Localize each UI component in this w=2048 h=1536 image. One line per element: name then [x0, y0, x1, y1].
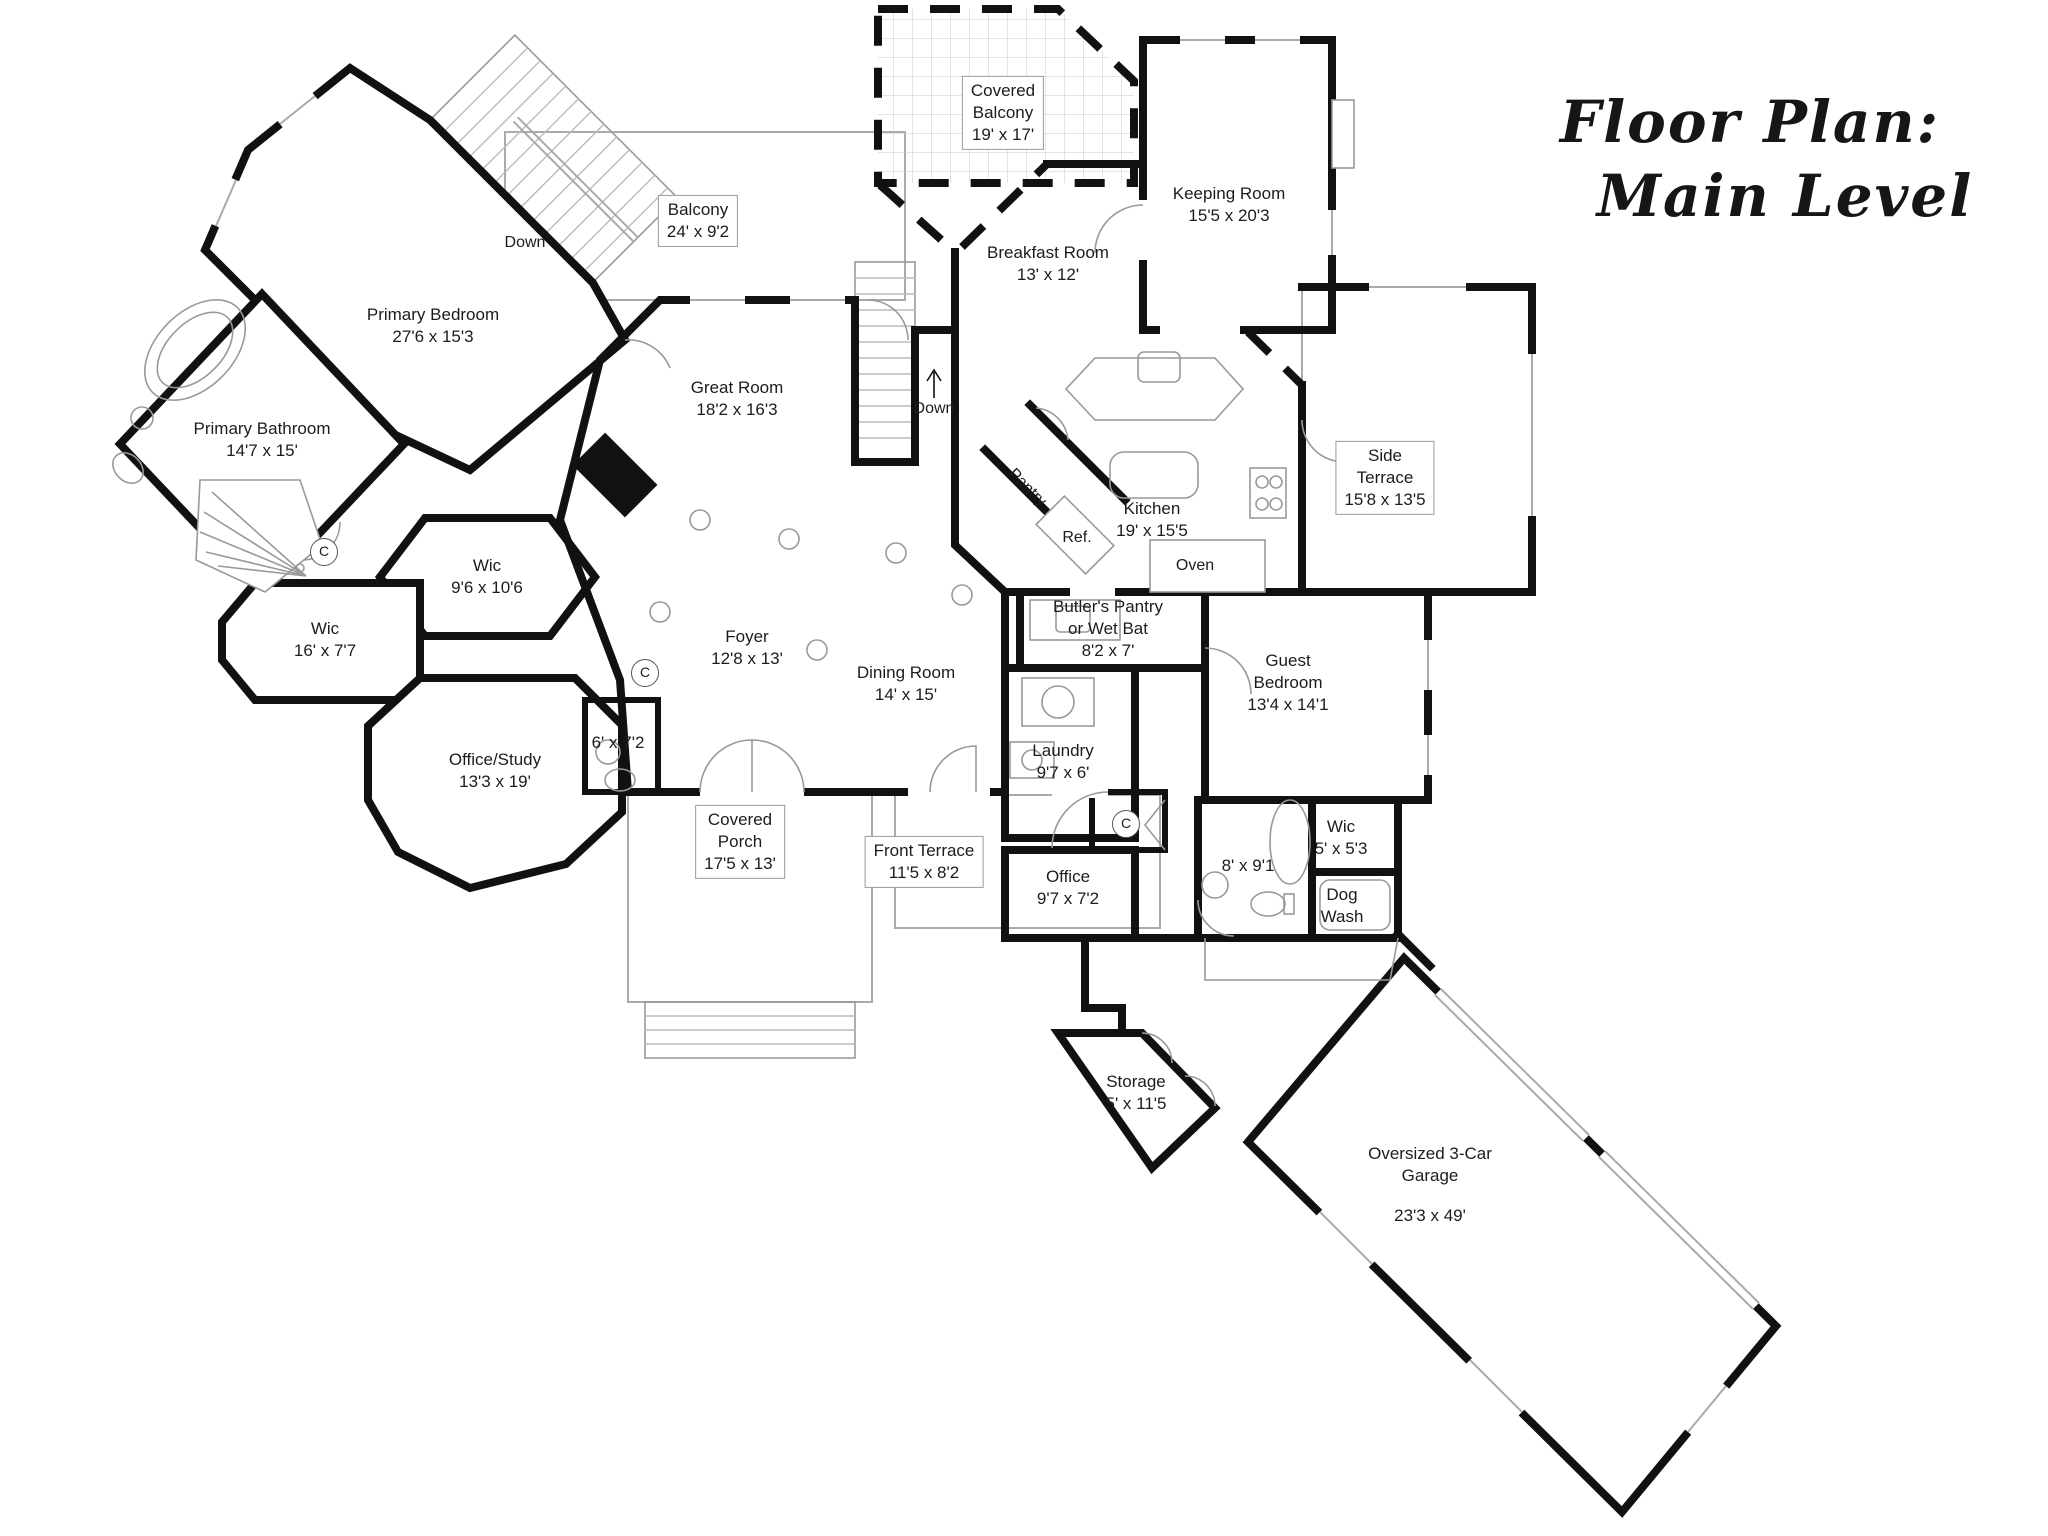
room-name: Dining Room	[857, 662, 955, 684]
room-label-laundry: Laundry9'7 x 6'	[1032, 740, 1093, 784]
room-name: Great Room	[691, 377, 784, 399]
plan-title: Floor Plan: Main Level	[1470, 88, 2030, 230]
annotation-down-upper-stairs: Down	[505, 234, 546, 252]
annotation-closet-3: C	[1112, 810, 1140, 838]
room-label-foyer: Foyer12'8 x 13'	[711, 626, 783, 670]
room-label-guest-bathroom: 8' x 9'1	[1222, 855, 1275, 877]
room-name: Primary Bathroom	[194, 418, 331, 440]
annotation-down-lower-stairs: Down	[914, 400, 955, 418]
room-name: Wic	[451, 555, 523, 577]
room-label-great-room: Great Room18'2 x 16'3	[691, 377, 784, 421]
room-name: Foyer	[711, 626, 783, 648]
room-name: Office/Study	[449, 749, 541, 771]
room-name: Breakfast Room	[987, 242, 1109, 264]
room-label-breakfast-room: Breakfast Room13' x 12'	[987, 242, 1109, 286]
room-dims: 5' x 5'3	[1315, 838, 1368, 860]
room-dims: 8' x 9'1	[1222, 855, 1275, 877]
room-dims: 16' x 7'7	[294, 640, 356, 662]
room-dims: 9'7 x 6'	[1032, 762, 1093, 784]
room-name: Laundry	[1032, 740, 1093, 762]
room-label-kitchen: Kitchen19' x 15'5	[1116, 498, 1188, 542]
room-name: Oversized 3-Car Garage	[1368, 1143, 1492, 1187]
room-dims: 9'6 x 10'6	[451, 577, 523, 599]
room-label-guest-bedroom: Guest Bedroom13'4 x 14'1	[1247, 650, 1328, 716]
room-label-covered-porch: Covered Porch17'5 x 13'	[695, 805, 785, 879]
room-name: Wic	[294, 618, 356, 640]
annotation-closet-1: C	[310, 538, 338, 566]
room-name: Wic	[1315, 816, 1368, 838]
room-label-primary-bedroom: Primary Bedroom27'6 x 15'3	[367, 304, 499, 348]
room-dims: 23'3 x 49'	[1368, 1205, 1492, 1227]
room-labels: Covered Balcony19' x 17'Balcony24' x 9'2…	[0, 0, 2048, 1536]
room-name: Covered Balcony	[971, 80, 1035, 124]
room-dims: 11'5 x 8'2	[874, 862, 975, 884]
room-name: Covered Porch	[704, 809, 776, 853]
annotation-oven: Oven	[1176, 557, 1214, 575]
room-dims: 13'3 x 19'	[449, 771, 541, 793]
plan-title-line1: Floor Plan:	[1470, 88, 2030, 156]
room-name: Primary Bedroom	[367, 304, 499, 326]
room-name: Balcony	[667, 199, 729, 221]
room-label-powder-room: 6' x 7'2	[592, 732, 645, 754]
room-label-balcony: Balcony24' x 9'2	[658, 195, 738, 247]
room-label-office: Office9'7 x 7'2	[1037, 866, 1099, 910]
room-name: Kitchen	[1116, 498, 1188, 520]
room-name: Front Terrace	[874, 840, 975, 862]
room-dims: 5' x 11'5	[1106, 1093, 1167, 1115]
room-name: Keeping Room	[1173, 183, 1285, 205]
room-name: Storage	[1106, 1071, 1167, 1093]
room-name: Dog Wash	[1321, 884, 1364, 928]
room-label-dining-room: Dining Room14' x 15'	[857, 662, 955, 706]
room-dims: 14' x 15'	[857, 684, 955, 706]
room-label-wic-primary-2: Wic16' x 7'7	[294, 618, 356, 662]
room-dims: 15'8 x 13'5	[1344, 489, 1425, 511]
room-dims: 15'5 x 20'3	[1173, 205, 1285, 227]
room-name: Side Terrace	[1344, 445, 1425, 489]
plan-title-line2: Main Level	[1470, 162, 2030, 230]
room-dims: 13'4 x 14'1	[1247, 694, 1328, 716]
room-name: Office	[1037, 866, 1099, 888]
room-dims: 19' x 17'	[971, 124, 1035, 146]
annotation-pantry: Pantry	[1004, 465, 1049, 510]
room-name: Guest Bedroom	[1247, 650, 1328, 694]
room-label-primary-bathroom: Primary Bathroom14'7 x 15'	[194, 418, 331, 462]
room-label-butlers-pantry: Butler's Pantry or Wet Bat8'2 x 7'	[1053, 596, 1163, 662]
room-label-wic-primary-1: Wic9'6 x 10'6	[451, 555, 523, 599]
room-dims: 8'2 x 7'	[1053, 640, 1163, 662]
room-dims: 17'5 x 13'	[704, 853, 776, 875]
annotation-closet-2: C	[631, 659, 659, 687]
room-label-garage: Oversized 3-Car Garage23'3 x 49'	[1368, 1143, 1492, 1227]
room-label-wic-guest: Wic5' x 5'3	[1315, 816, 1368, 860]
room-dims: 18'2 x 16'3	[691, 399, 784, 421]
room-dims: 9'7 x 7'2	[1037, 888, 1099, 910]
room-name: Butler's Pantry or Wet Bat	[1053, 596, 1163, 640]
room-label-office-study: Office/Study13'3 x 19'	[449, 749, 541, 793]
room-label-storage: Storage5' x 11'5	[1106, 1071, 1167, 1115]
room-label-dog-wash: Dog Wash	[1321, 884, 1364, 928]
room-dims: 24' x 9'2	[667, 221, 729, 243]
room-dims: 27'6 x 15'3	[367, 326, 499, 348]
annotation-refrigerator: Ref.	[1062, 529, 1091, 547]
room-label-side-terrace: Side Terrace15'8 x 13'5	[1335, 441, 1434, 515]
room-label-keeping-room: Keeping Room15'5 x 20'3	[1173, 183, 1285, 227]
room-dims: 14'7 x 15'	[194, 440, 331, 462]
room-dims: 19' x 15'5	[1116, 520, 1188, 542]
room-dims: 6' x 7'2	[592, 732, 645, 754]
room-dims: 13' x 12'	[987, 264, 1109, 286]
room-label-covered-balcony: Covered Balcony19' x 17'	[962, 76, 1044, 150]
room-dims: 12'8 x 13'	[711, 648, 783, 670]
floor-plan-page: Covered Balcony19' x 17'Balcony24' x 9'2…	[0, 0, 2048, 1536]
room-label-front-terrace: Front Terrace11'5 x 8'2	[865, 836, 984, 888]
